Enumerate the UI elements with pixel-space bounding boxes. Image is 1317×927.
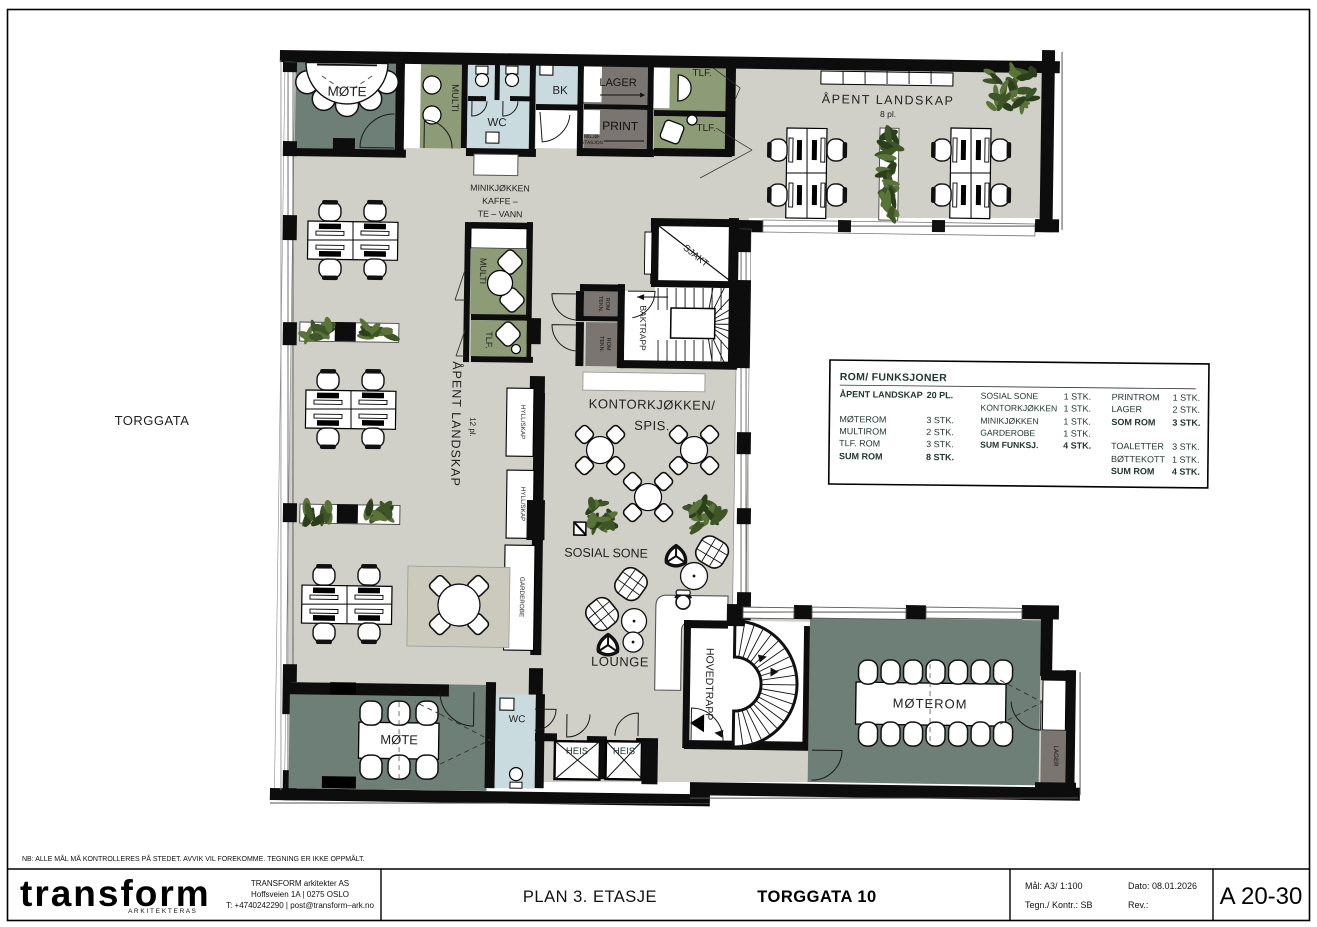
svg-text:1 STK.: 1 STK.	[1063, 416, 1091, 426]
svg-text:ROM: ROM	[605, 338, 611, 351]
svg-text:GARDEROBE: GARDEROBE	[518, 577, 526, 617]
svg-text:1 STK.: 1 STK.	[1063, 403, 1091, 413]
svg-text:A 20-30: A 20-30	[1220, 883, 1303, 910]
svg-text:1 STK.: 1 STK.	[1064, 391, 1092, 401]
svg-text:TE – VANN: TE – VANN	[478, 209, 523, 220]
svg-text:TORGGATA: TORGGATA	[115, 413, 190, 428]
svg-text:20 PL.: 20 PL.	[927, 390, 954, 400]
svg-text:MULTIROM: MULTIROM	[839, 426, 886, 436]
svg-text:SOSIAL SONE: SOSIAL SONE	[981, 391, 1039, 402]
svg-text:TRANSFORM arkitekter AS: TRANSFORM arkitekter AS	[251, 879, 349, 888]
svg-text:WC: WC	[487, 117, 506, 129]
svg-text:Tegn./ Kontr.: SB: Tegn./ Kontr.: SB	[1025, 900, 1093, 910]
svg-text:4 STK.: 4 STK.	[1063, 440, 1091, 450]
svg-text:TEKN.: TEKN.	[598, 336, 604, 353]
svg-text:MINIKJØKKEN: MINIKJØKKEN	[980, 416, 1038, 427]
svg-text:BAKTRAPP: BAKTRAPP	[638, 305, 649, 351]
svg-text:PRINT: PRINT	[602, 119, 639, 134]
svg-text:TEKN.: TEKN.	[597, 296, 603, 313]
svg-text:Dato: 08.01.2026: Dato: 08.01.2026	[1128, 881, 1197, 891]
svg-text:WC: WC	[509, 714, 526, 725]
svg-text:TOALETTER: TOALETTER	[1111, 441, 1164, 452]
svg-text:SUM ROM: SUM ROM	[1111, 466, 1155, 476]
svg-text:2 STK.: 2 STK.	[926, 427, 954, 437]
svg-text:TORGGATA 10: TORGGATA 10	[757, 888, 877, 906]
svg-text:KONTORKJØKKEN/: KONTORKJØKKEN/	[589, 396, 716, 413]
svg-text:HYLL/SKAP: HYLL/SKAP	[519, 487, 526, 521]
svg-text:TLF.: TLF.	[696, 123, 716, 134]
svg-text:MINIKJØKKEN: MINIKJØKKEN	[470, 183, 530, 194]
svg-text:ÅPENT LANDSKAP: ÅPENT LANDSKAP	[822, 91, 955, 108]
svg-text:KAFFE –: KAFFE –	[482, 196, 518, 207]
svg-text:3 STK.: 3 STK.	[926, 415, 954, 425]
svg-text:LAGER: LAGER	[1052, 746, 1059, 768]
svg-text:MULTI: MULTI	[478, 258, 488, 284]
svg-text:GARDEROBE: GARDEROBE	[980, 428, 1035, 439]
svg-text:3 STK.: 3 STK.	[1172, 442, 1200, 452]
svg-text:A R K I T E K T E R A S: A R K I T E K T E R A S	[128, 908, 196, 915]
svg-text:PRINTROM: PRINTROM	[1112, 392, 1160, 403]
svg-text:HEIS: HEIS	[613, 746, 635, 757]
svg-text:SPIS.: SPIS.	[634, 418, 670, 434]
svg-text:3 STK.: 3 STK.	[1172, 418, 1200, 428]
svg-text:STASJON: STASJON	[581, 140, 603, 146]
svg-text:SOM ROM: SOM ROM	[1111, 417, 1155, 427]
svg-text:KONTORKJØKKEN: KONTORKJØKKEN	[980, 403, 1057, 414]
svg-text:PLAN 3. ETASJE: PLAN 3. ETASJE	[523, 888, 657, 906]
svg-text:TLF.: TLF.	[692, 68, 712, 79]
svg-text:HEIS: HEIS	[566, 746, 588, 757]
svg-text:BØTTEKOTT: BØTTEKOTT	[1111, 454, 1166, 465]
svg-text:MILJØ-: MILJØ-	[584, 134, 600, 140]
svg-text:1 STK.: 1 STK.	[1172, 455, 1200, 465]
svg-text:1 STK.: 1 STK.	[1173, 393, 1201, 403]
svg-text:HOVEDTRAPP: HOVEDTRAPP	[703, 648, 716, 721]
svg-text:4 STK.: 4 STK.	[1172, 467, 1200, 477]
svg-text:SUM FUNKSJ.: SUM FUNKSJ.	[980, 440, 1038, 451]
svg-text:ÅPENT LANDSKAP: ÅPENT LANDSKAP	[840, 389, 923, 400]
svg-text:Mål: A3/ 1:100: Mål: A3/ 1:100	[1025, 881, 1083, 891]
svg-text:LAGER: LAGER	[1111, 404, 1142, 414]
svg-text:8 STK.: 8 STK.	[926, 452, 954, 462]
svg-text:Rev.:: Rev.:	[1128, 900, 1148, 910]
svg-text:BK: BK	[552, 85, 568, 97]
svg-text:SOSIAL SONE: SOSIAL SONE	[564, 545, 648, 560]
svg-text:1 STK.: 1 STK.	[1063, 428, 1091, 438]
svg-text:ROM: ROM	[604, 298, 610, 311]
svg-text:Hoffsveien 1A | 0275 OSLO: Hoffsveien 1A | 0275 OSLO	[251, 890, 349, 899]
svg-text:MULTI: MULTI	[449, 84, 460, 112]
svg-text:SUM ROM: SUM ROM	[839, 451, 883, 461]
svg-text:12 pl.: 12 pl.	[468, 417, 477, 437]
svg-text:TLF.: TLF.	[484, 331, 494, 349]
svg-text:MØTE: MØTE	[327, 84, 366, 100]
svg-text:3 STK.: 3 STK.	[926, 439, 954, 449]
svg-text:MØTEROM: MØTEROM	[839, 414, 886, 424]
svg-text:ROM/ FUNKSJONER: ROM/ FUNKSJONER	[840, 371, 947, 384]
svg-text:TLF. ROM: TLF. ROM	[839, 438, 880, 448]
svg-text:T: +4740242290 | post@transfor: T: +4740242290 | post@transform–ark.no	[226, 901, 374, 910]
svg-text:LOUNGE: LOUNGE	[591, 654, 649, 670]
svg-text:8 pl.: 8 pl.	[880, 109, 896, 119]
svg-text:ÅPENT LANDSKAP: ÅPENT LANDSKAP	[448, 361, 465, 487]
svg-text:HYLL/SKAP: HYLL/SKAP	[519, 405, 526, 439]
svg-text:NB: ALLE MÅL MÅ KONTROLLERES P: NB: ALLE MÅL MÅ KONTROLLERES PÅ STEDET. …	[22, 854, 365, 863]
svg-text:LAGER: LAGER	[599, 77, 637, 90]
svg-text:2 STK.: 2 STK.	[1172, 405, 1200, 415]
